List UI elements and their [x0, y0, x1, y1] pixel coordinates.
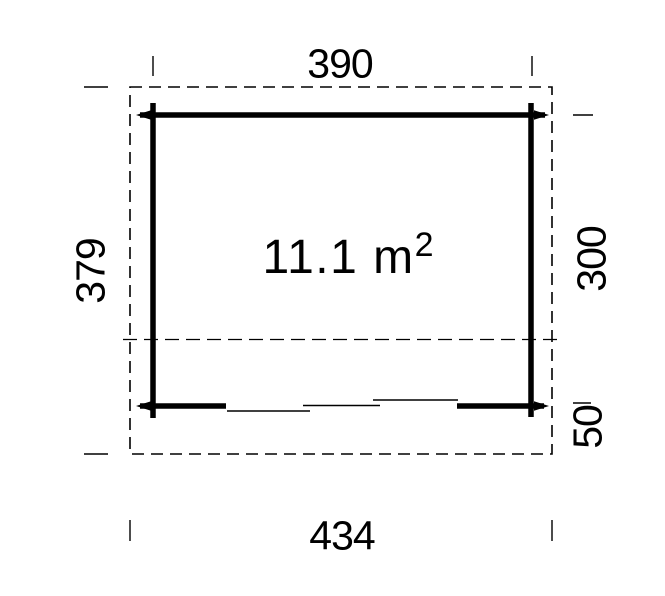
dimension-label-top: 390	[307, 44, 372, 85]
area-exponent: 2	[415, 228, 434, 262]
dimension-label-bottom: 434	[309, 516, 374, 557]
dimension-label-right-upper: 300	[572, 226, 613, 291]
dimension-label-left: 379	[71, 238, 112, 303]
arrowhead-top-right	[534, 110, 549, 120]
arrowhead-bottom-left	[136, 401, 151, 411]
arrowhead-bottom-right	[534, 401, 549, 411]
dimension-label-right-lower: 50	[568, 405, 609, 449]
area-label: 11.1 m2	[262, 234, 433, 282]
area-value: 11.1 m	[262, 231, 414, 284]
arrowhead-top-left	[136, 110, 151, 120]
floor-plan-canvas: 390 434 379 300 50 11.1 m2	[0, 0, 665, 596]
